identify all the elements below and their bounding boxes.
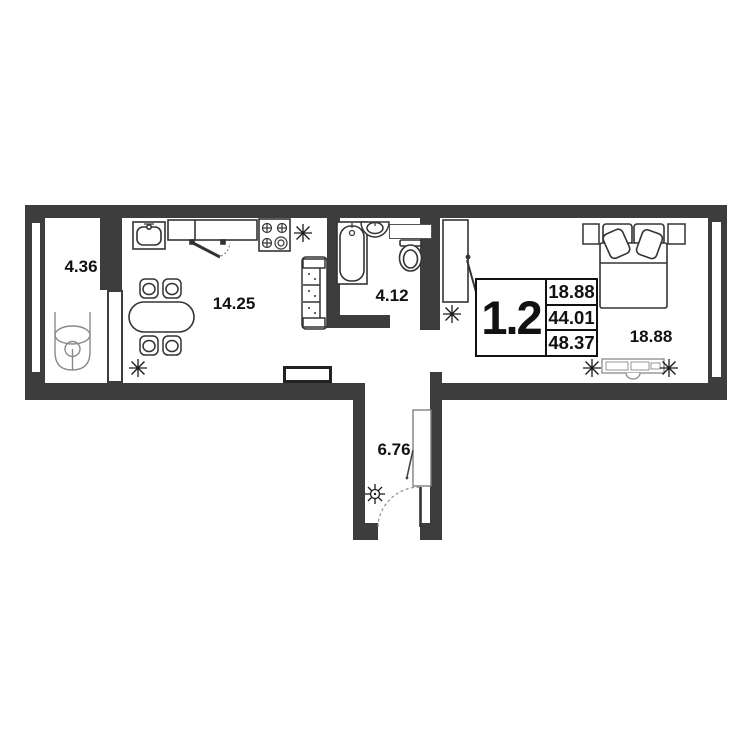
apartment-info-block: 1.2 18.88 44.01 48.37 (475, 278, 598, 357)
laundry-tub (55, 312, 90, 370)
stove (259, 219, 290, 251)
toilet (400, 240, 422, 271)
bathtub (337, 222, 367, 284)
hall-area-label: 6.76 (377, 440, 410, 460)
chandelier-icon (365, 484, 385, 504)
area-value-total: 48.37 (547, 329, 596, 355)
apartment-type-label: 1.2 (477, 280, 547, 355)
loggia-area-label: 4.36 (64, 257, 97, 277)
kitchen-area-label: 14.25 (213, 294, 256, 314)
bed (600, 224, 667, 308)
sofa (302, 257, 327, 329)
bathroom-area-label: 4.12 (375, 286, 408, 306)
bedroom-area-label: 18.88 (630, 327, 673, 347)
entrance-door (378, 487, 421, 527)
kitchen-counter (168, 220, 257, 257)
tv-stand (602, 359, 664, 379)
kitchen-sink (133, 222, 165, 249)
area-value-living: 18.88 (547, 280, 596, 304)
floor-plan: 4.36 14.25 4.12 6.76 18.88 1.2 18.88 44.… (0, 0, 750, 750)
area-value-main: 44.01 (547, 304, 596, 330)
dining-table (129, 302, 194, 332)
